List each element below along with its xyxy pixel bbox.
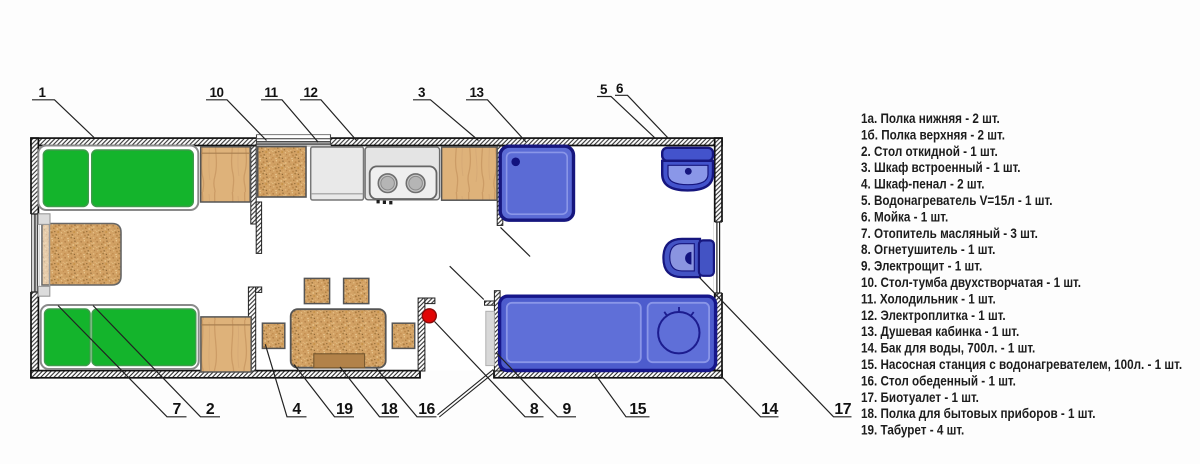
svg-text:14: 14 (761, 401, 778, 418)
svg-text:4. Шкаф-пенал - 2 шт.: 4. Шкаф-пенал - 2 шт. (861, 177, 985, 192)
svg-text:10. Стол-тумба двухстворчатая: 10. Стол-тумба двухстворчатая - 1 шт. (861, 275, 1081, 290)
svg-text:6: 6 (616, 81, 623, 96)
svg-text:15: 15 (629, 401, 646, 418)
svg-text:3. Шкаф встроенный - 1 шт.: 3. Шкаф встроенный - 1 шт. (861, 160, 1021, 175)
svg-text:15. Насосная станция с водонаг: 15. Насосная станция с водонагревателем,… (861, 357, 1182, 372)
svg-text:18: 18 (381, 401, 398, 418)
svg-text:3: 3 (418, 85, 425, 100)
svg-text:7: 7 (173, 401, 182, 418)
svg-text:12. Электроплитка - 1 шт.: 12. Электроплитка - 1 шт. (861, 308, 1006, 323)
svg-text:10: 10 (209, 85, 223, 100)
svg-text:5: 5 (600, 82, 608, 97)
svg-text:2: 2 (206, 401, 215, 418)
svg-text:7. Отопитель масляный - 3 шт.: 7. Отопитель масляный - 3 шт. (861, 226, 1038, 241)
svg-text:11. Холодильник - 1 шт.: 11. Холодильник - 1 шт. (861, 292, 996, 307)
svg-text:8. Огнетушитель - 1 шт.: 8. Огнетушитель - 1 шт. (861, 242, 995, 257)
svg-text:16: 16 (418, 401, 435, 418)
svg-text:18. Полка для бытовых приборов: 18. Полка для бытовых приборов - 1 шт. (861, 406, 1095, 421)
svg-text:17. Биотуалет - 1 шт.: 17. Биотуалет - 1 шт. (861, 390, 979, 405)
svg-text:14. Бак для воды, 700л. - 1 ш: 14. Бак для воды, 700л. - 1 шт. (861, 341, 1035, 356)
svg-text:2. Стол откидной - 1 шт.: 2. Стол откидной - 1 шт. (861, 144, 998, 159)
svg-text:11: 11 (264, 85, 278, 100)
svg-text:1: 1 (38, 85, 46, 100)
svg-text:9: 9 (563, 401, 572, 418)
svg-text:6. Мойка - 1 шт.: 6. Мойка - 1 шт. (861, 210, 948, 225)
svg-text:17: 17 (834, 401, 851, 418)
svg-text:1а. Полка нижняя - 2 шт.: 1а. Полка нижняя - 2 шт. (861, 111, 1000, 126)
svg-text:13: 13 (469, 85, 483, 100)
svg-text:12: 12 (303, 85, 317, 100)
svg-text:1б. Полка верхняя - 2 шт.: 1б. Полка верхняя - 2 шт. (861, 128, 1005, 143)
svg-text:16. Стол обеденный - 1 шт.: 16. Стол обеденный - 1 шт. (861, 374, 1016, 389)
svg-text:5. Водонагреватель V=15л - 1 ш: 5. Водонагреватель V=15л - 1 шт. (861, 193, 1052, 208)
svg-text:19: 19 (336, 401, 353, 418)
svg-text:4: 4 (292, 401, 301, 418)
svg-text:13. Душевая кабинка - 1 шт.: 13. Душевая кабинка - 1 шт. (861, 324, 1019, 339)
svg-text:9. Электрощит - 1 шт.: 9. Электрощит - 1 шт. (861, 259, 982, 274)
svg-text:19. Табурет - 4 шт.: 19. Табурет - 4 шт. (861, 423, 964, 438)
svg-text:8: 8 (530, 401, 539, 418)
